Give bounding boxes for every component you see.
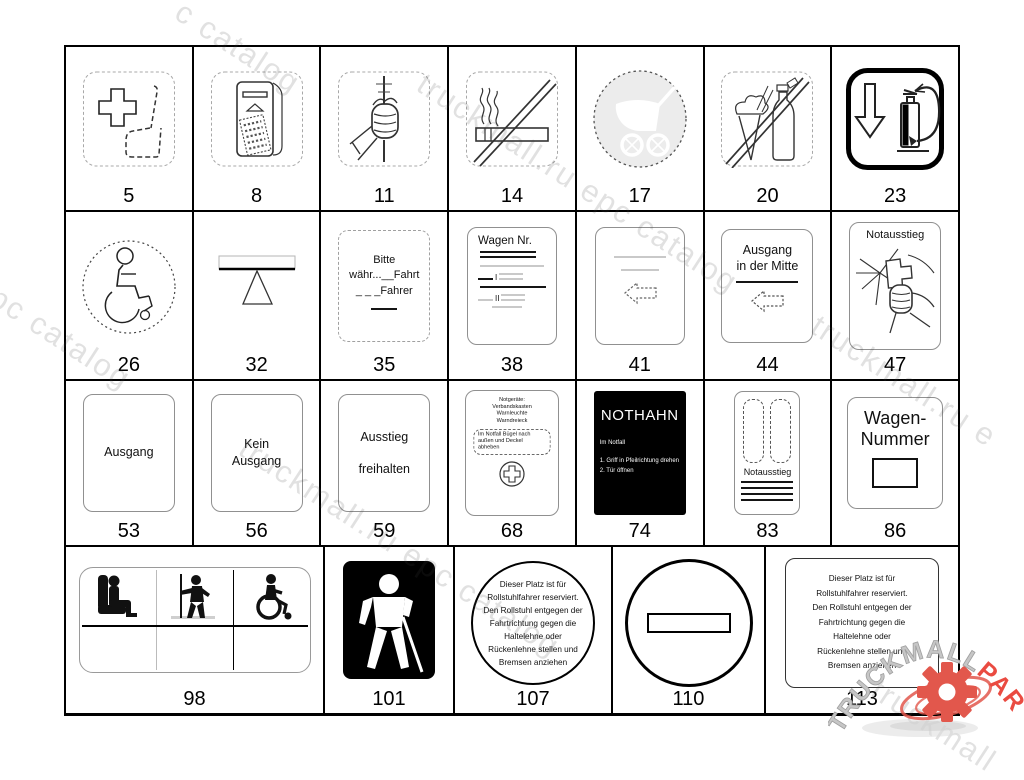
wheelchair-notice-rect-sign: Dieser Platz ist für Rollstuhlfahrer res… bbox=[785, 558, 939, 688]
catalog-cell-20[interactable]: 20 bbox=[705, 47, 833, 210]
catalog-cell-5[interactable]: 5 bbox=[66, 47, 194, 210]
ausgang-mitte-sign: Ausgang in der Mitte bbox=[721, 229, 813, 343]
item-number: 20 bbox=[705, 185, 831, 208]
sign-text: Im Notfall bbox=[600, 440, 680, 446]
sign-text: Fahrtrichtung gegen die bbox=[476, 617, 590, 630]
item-number: 11 bbox=[321, 185, 447, 208]
break-glass-hand-icon bbox=[852, 241, 938, 341]
item-number: 35 bbox=[321, 354, 447, 377]
item-number: 68 bbox=[449, 520, 575, 543]
roman-numeral: II bbox=[495, 297, 499, 301]
catalog-cell-38[interactable]: Wagen Nr. I II 38 bbox=[449, 212, 577, 379]
sign-title: Notausstieg bbox=[739, 467, 795, 477]
catalog-cell-83[interactable]: Notausstieg 83 bbox=[705, 381, 833, 545]
blind-person-icon bbox=[342, 560, 436, 680]
sign-text: Kein bbox=[212, 436, 302, 454]
catalog-cell-8[interactable]: 8 bbox=[194, 47, 322, 210]
seated-person-icon bbox=[80, 572, 157, 622]
sign-text: Fahrtrichtung gegen die bbox=[789, 616, 935, 631]
wagen-nummer-sign: Wagen- Nummer bbox=[847, 397, 943, 509]
seating-pictogram-strip bbox=[79, 567, 311, 673]
catalog-cell-53[interactable]: Ausgang 53 bbox=[66, 381, 194, 545]
sign-text: Bitte bbox=[339, 253, 429, 269]
sign-title: NOTHAHN bbox=[600, 407, 680, 424]
catalog-cell-59[interactable]: Ausstieg freihalten 59 bbox=[321, 381, 449, 545]
sign-title: Notausstieg bbox=[850, 229, 940, 241]
catalog-page: { "watermark": { "color": "rgba(70,70,70… bbox=[0, 0, 1024, 750]
item-number: 107 bbox=[455, 688, 611, 711]
handhold-pole-icon bbox=[336, 70, 432, 168]
sign-text: 1. Griff in Pfeilrichtung drehen bbox=[600, 456, 680, 466]
sign-text: Ausstieg bbox=[339, 421, 429, 454]
grid-row-2: 26 32 Bitte währ...__Fahrt _ _ _Fahrer bbox=[66, 212, 958, 381]
sign-text: Den Rollstuhl entgegen der bbox=[789, 601, 935, 616]
sign-text: Warndreieck bbox=[473, 418, 550, 425]
sign-text: Rückenlehne stellen und bbox=[789, 645, 935, 660]
parts-grid: 5 8 bbox=[64, 45, 960, 716]
grid-row-3: Ausgang 53 Kein Ausgang 56 Ausstieg frei… bbox=[66, 381, 958, 547]
sign-text: Den Rollstuhl entgegen der bbox=[476, 604, 590, 617]
sign-text: 2. Tür öffnen bbox=[600, 466, 680, 476]
ausstieg-freihalten-sign: Ausstieg freihalten bbox=[338, 394, 430, 512]
pram-icon bbox=[591, 68, 689, 170]
nothahn-sign: NOTHAHN Im Notfall 1. Griff in Pfeilrich… bbox=[594, 391, 686, 515]
catalog-cell-11[interactable]: 11 bbox=[321, 47, 449, 210]
sign-text: abheben bbox=[478, 445, 549, 452]
ticket-validator-icon bbox=[209, 70, 305, 168]
item-number: 110 bbox=[613, 688, 764, 711]
sign-text: Ausgang bbox=[722, 242, 812, 258]
wheelchair-notice-circle-sign: Dieser Platz ist für Rollstuhlfahrer res… bbox=[471, 561, 595, 685]
catalog-cell-23[interactable]: 23 bbox=[832, 47, 958, 210]
catalog-cell-68[interactable]: Notgeräte: Verbandskasten Warnleuchte Wa… bbox=[449, 381, 577, 545]
roman-numeral: I bbox=[495, 276, 497, 280]
first-aid-cross-icon bbox=[498, 460, 526, 488]
item-number: 14 bbox=[449, 185, 575, 208]
wheelchair-icon bbox=[79, 234, 179, 338]
sign-text: in der Mitte bbox=[722, 258, 812, 274]
item-number: 17 bbox=[577, 185, 703, 208]
balance-bar-icon bbox=[209, 250, 305, 322]
notausstieg-window-sign: Notausstieg bbox=[734, 391, 800, 515]
catalog-cell-47[interactable]: Notausstieg 47 bbox=[832, 212, 958, 379]
item-number: 59 bbox=[321, 520, 447, 543]
item-number: 53 bbox=[66, 520, 192, 543]
first-aid-seat-icon bbox=[81, 70, 177, 168]
catalog-cell-35[interactable]: Bitte währ...__Fahrt _ _ _Fahrer 35 bbox=[321, 212, 449, 379]
item-number: 5 bbox=[66, 185, 192, 208]
sign-text: Dieser Platz ist für bbox=[789, 572, 935, 587]
sign-text: _ _ _Fahrer bbox=[339, 284, 429, 300]
sign-text: Notgeräte: bbox=[473, 397, 550, 404]
notausstieg-hammer-sign: Notausstieg bbox=[849, 222, 941, 350]
ausgang-sign: Ausgang bbox=[83, 394, 175, 512]
item-number: 44 bbox=[705, 354, 831, 377]
sign-text: Wagen- bbox=[848, 408, 942, 429]
item-number: 32 bbox=[194, 354, 320, 377]
sign-text: Ausgang bbox=[84, 444, 174, 462]
emergency-equipment-sign: Notgeräte: Verbandskasten Warnleuchte Wa… bbox=[465, 390, 559, 516]
sign-text: Im Notfall Bügel nach bbox=[478, 432, 549, 439]
logo-shadow bbox=[862, 719, 978, 737]
item-number: 56 bbox=[194, 520, 320, 543]
sign-text: Nummer bbox=[848, 429, 942, 450]
item-number: 74 bbox=[577, 520, 703, 543]
arrow-left-icon bbox=[722, 289, 812, 313]
sign-text: Bremsen anziehen bbox=[789, 659, 935, 674]
catalog-cell-74[interactable]: NOTHAHN Im Notfall 1. Griff in Pfeilrich… bbox=[577, 381, 705, 545]
sign-text: Rollstuhlfahrer reserviert. bbox=[476, 591, 590, 604]
catalog-cell-14[interactable]: 14 bbox=[449, 47, 577, 210]
item-number: 38 bbox=[449, 354, 575, 377]
arrow-left-icon bbox=[596, 281, 684, 305]
catalog-cell-26[interactable]: 26 bbox=[66, 212, 194, 379]
sign-text: Haltelehne oder bbox=[476, 630, 590, 643]
wheelchair-person-icon bbox=[233, 572, 310, 622]
sign-text: Rückenlehne stellen und bbox=[476, 643, 590, 656]
kein-ausgang-sign: Kein Ausgang bbox=[211, 394, 303, 512]
fire-extinguisher-icon bbox=[845, 67, 945, 171]
no-food-drink-icon bbox=[719, 70, 815, 168]
item-number: 23 bbox=[832, 185, 958, 208]
no-entry-icon bbox=[625, 559, 753, 687]
catalog-cell-110[interactable]: 110 bbox=[613, 547, 766, 713]
catalog-cell-107[interactable]: Dieser Platz ist für Rollstuhlfahrer res… bbox=[455, 547, 613, 713]
sign-text: Haltelehne oder bbox=[789, 630, 935, 645]
sign-text: Dieser Platz ist für bbox=[476, 578, 590, 591]
sign-text: Bremsen anziehen bbox=[476, 656, 590, 669]
catalog-cell-32[interactable]: 32 bbox=[194, 212, 322, 379]
catalog-cell-17[interactable]: 17 bbox=[577, 47, 705, 210]
item-number: 83 bbox=[705, 520, 831, 543]
wagen-nr-form-sign: Wagen Nr. I II bbox=[467, 227, 557, 345]
item-number: 86 bbox=[832, 520, 958, 543]
emergency-window-icon bbox=[739, 399, 795, 463]
sign-text: Verbandskasten bbox=[473, 404, 550, 411]
no-smoking-icon bbox=[464, 70, 560, 168]
item-number: 113 bbox=[766, 688, 958, 711]
sign-text: Warnleuchte bbox=[473, 411, 550, 418]
sign-text: Rollstuhlfahrer reserviert. bbox=[789, 587, 935, 602]
number-placeholder-box bbox=[872, 458, 918, 488]
standing-person-icon bbox=[156, 572, 233, 622]
divider bbox=[736, 281, 798, 283]
item-number: 41 bbox=[577, 354, 703, 377]
catalog-cell-44[interactable]: Ausgang in der Mitte 44 bbox=[705, 212, 833, 379]
item-number: 101 bbox=[325, 688, 453, 711]
item-number: 47 bbox=[832, 354, 958, 377]
sign-text: währ...__Fahrt bbox=[339, 268, 429, 284]
item-number: 26 bbox=[66, 354, 192, 377]
grid-row-4: 98 101 Dieser bbox=[66, 547, 958, 713]
sign-title: Wagen Nr. bbox=[478, 235, 546, 247]
item-number: 98 bbox=[66, 688, 323, 711]
exit-arrow-sign bbox=[595, 227, 685, 345]
text-sign: Bitte währ...__Fahrt _ _ _Fahrer bbox=[338, 230, 430, 342]
catalog-cell-56[interactable]: Kein Ausgang 56 bbox=[194, 381, 322, 545]
catalog-cell-113[interactable]: Dieser Platz ist für Rollstuhlfahrer res… bbox=[766, 547, 958, 713]
sign-text: freihalten bbox=[339, 453, 429, 486]
item-number: 8 bbox=[194, 185, 320, 208]
catalog-cell-98[interactable]: 98 bbox=[66, 547, 325, 713]
catalog-cell-41[interactable]: 41 bbox=[577, 212, 705, 379]
catalog-cell-86[interactable]: Wagen- Nummer 86 bbox=[832, 381, 958, 545]
grid-row-1: 5 8 bbox=[66, 47, 958, 212]
divider bbox=[371, 308, 397, 310]
sign-text: Ausgang bbox=[212, 453, 302, 471]
catalog-cell-101[interactable]: 101 bbox=[325, 547, 455, 713]
